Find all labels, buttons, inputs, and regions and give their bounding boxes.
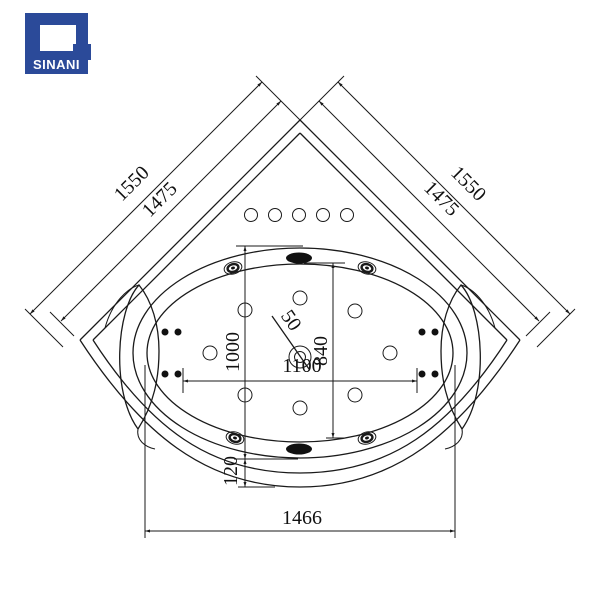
dim-label-1000: 1000	[222, 332, 244, 372]
dimension-basin-height: 840	[304, 263, 345, 438]
brand-logo: SINANI	[25, 13, 88, 74]
logo-brand-text: SINANI	[25, 58, 88, 71]
dimension-side-left: 1550 1475	[25, 82, 281, 347]
armrest-right	[441, 285, 495, 449]
deck-air-circles	[245, 209, 354, 222]
dimension-basin-length: 1100	[183, 355, 417, 393]
dimension-front-lip: 120	[220, 456, 275, 487]
dimension-rim-height: 1000	[222, 246, 303, 459]
drawing-page: SINANI	[0, 0, 600, 600]
wall-jet-fixture-bottom-right	[357, 430, 377, 446]
wall-jet-fixture-top-right	[357, 260, 377, 276]
rim-and-basin	[133, 248, 467, 458]
logo-g-glyph	[40, 25, 76, 51]
wall-jet-fixture-top-left	[223, 260, 243, 276]
dim-label-120: 120	[220, 456, 242, 486]
dim-label-1466: 1466	[282, 507, 322, 529]
wall-jet-fixture-bottom-left	[225, 430, 245, 446]
bathtub-technical-drawing: 1550 1475 1550 1475 1000 840	[0, 0, 600, 600]
dimension-side-right: 1550 1475	[319, 82, 575, 347]
dim-label-1100: 1100	[282, 355, 321, 377]
dim-label-50: 50	[276, 306, 305, 335]
armrest-left	[105, 285, 159, 449]
